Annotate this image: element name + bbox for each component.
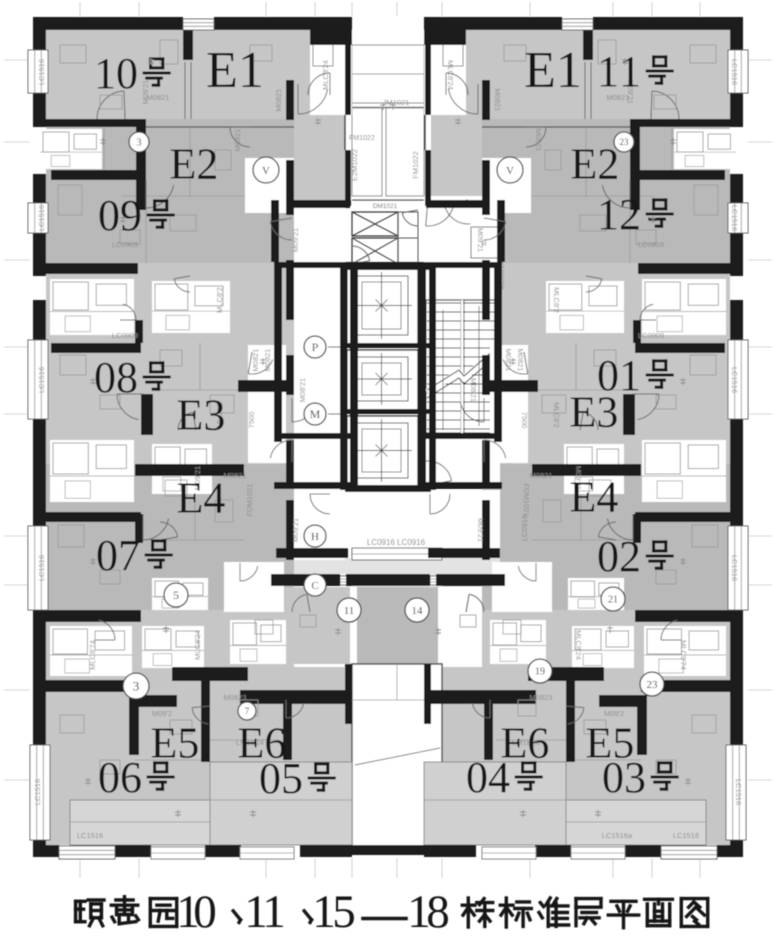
svg-text:M0823: M0823 — [530, 693, 553, 702]
svg-text:M09'21: M09'21 — [291, 228, 300, 252]
svg-text:M09'21: M09'21 — [476, 228, 485, 252]
svg-text:2: 2 — [619, 532, 641, 581]
svg-text:M0821: M0821 — [534, 129, 543, 152]
svg-text:MLC8'2: MLC8'2 — [552, 287, 561, 313]
svg-text:E4: E4 — [570, 472, 619, 521]
svg-text:M0821: M0821 — [251, 349, 260, 372]
svg-text:0: 0 — [193, 886, 217, 938]
svg-text:0: 0 — [98, 753, 120, 802]
svg-text:1: 1 — [597, 47, 619, 96]
svg-text:1: 1 — [597, 190, 619, 239]
svg-text:M0821: M0821 — [530, 471, 553, 480]
svg-text:3: 3 — [624, 753, 646, 802]
svg-text:2: 2 — [619, 190, 641, 239]
svg-text:LC1516: LC1516 — [37, 205, 46, 231]
svg-text:E3: E3 — [177, 390, 226, 439]
svg-text:FDM1021: FDM1021 — [522, 484, 531, 517]
svg-text:21: 21 — [608, 595, 618, 606]
svg-text:7: 7 — [118, 531, 140, 580]
svg-text:9: 9 — [120, 191, 142, 240]
svg-text:0: 0 — [259, 754, 281, 803]
svg-text:LC0909: LC0909 — [638, 331, 664, 340]
svg-text:M08'21: M08'21 — [469, 378, 478, 402]
svg-text:M09'21: M09'21 — [141, 80, 150, 104]
svg-text:8: 8 — [426, 886, 450, 938]
svg-text:JM1021: JM1021 — [383, 98, 410, 107]
svg-text:LC1516: LC1516 — [734, 779, 743, 805]
svg-text:LC1516: LC1516 — [77, 831, 103, 840]
svg-text:MLC8'24: MLC8'24 — [321, 60, 330, 90]
svg-text:C: C — [311, 580, 318, 592]
svg-text:3: 3 — [133, 679, 140, 694]
svg-text:LC1516: LC1516 — [730, 555, 739, 581]
svg-text:23: 23 — [620, 137, 630, 147]
svg-text:0: 0 — [116, 49, 138, 98]
svg-text:E2: E2 — [571, 139, 620, 188]
svg-text:LC1516: LC1516 — [673, 831, 699, 840]
svg-text:E4: E4 — [177, 473, 226, 522]
svg-text:8: 8 — [116, 353, 138, 402]
svg-text:23: 23 — [647, 679, 659, 691]
svg-text:M0821: M0821 — [274, 89, 283, 112]
svg-text:LC0909: LC0909 — [112, 331, 138, 340]
svg-text:0: 0 — [602, 753, 624, 802]
svg-text:E2: E2 — [170, 139, 219, 188]
svg-text:11: 11 — [344, 605, 355, 617]
svg-text:LC0916 LC0916: LC0916 LC0916 — [367, 538, 426, 547]
svg-text:LC1516: LC1516 — [730, 205, 739, 231]
svg-text:MLC8'24: MLC8'24 — [574, 630, 583, 660]
svg-text:E2M1022: E2M1022 — [350, 149, 359, 181]
svg-text:0: 0 — [466, 753, 488, 802]
svg-text:LC1516: LC1516 — [730, 367, 739, 393]
svg-text:LC0909: LC0909 — [112, 240, 138, 249]
svg-text:MLC8'74: MLC8'74 — [88, 640, 97, 670]
svg-text:0: 0 — [98, 191, 120, 240]
svg-text:E5: E5 — [151, 718, 200, 767]
svg-text:E1: E1 — [206, 42, 264, 99]
svg-text:MLC8'74: MLC8'74 — [679, 640, 688, 670]
svg-text:LC0916: LC0916 — [520, 515, 529, 541]
svg-text:0: 0 — [597, 532, 619, 581]
svg-text:0: 0 — [597, 351, 619, 400]
svg-text:M0821: M0821 — [516, 349, 525, 372]
svg-text:M08'21: M08'21 — [298, 378, 307, 402]
svg-text:LC1516: LC1516 — [37, 555, 46, 581]
svg-text:E1: E1 — [524, 42, 582, 99]
svg-text:MLC8'24: MLC8'24 — [193, 630, 202, 660]
svg-text:5: 5 — [332, 886, 356, 938]
svg-text:M0821: M0821 — [493, 89, 502, 112]
svg-text:M09'21: M09'21 — [291, 518, 300, 542]
svg-text:1: 1 — [94, 49, 116, 98]
svg-text:1: 1 — [262, 886, 286, 938]
svg-text:1: 1 — [619, 47, 641, 96]
svg-text:LC0909: LC0909 — [638, 240, 664, 249]
svg-text:FM1022: FM1022 — [349, 135, 375, 142]
svg-text:M0821: M0821 — [224, 471, 247, 480]
svg-text:DM1021: DM1021 — [373, 203, 398, 210]
svg-text:MLC8'2: MLC8'2 — [215, 287, 224, 313]
svg-text:M: M — [310, 407, 321, 421]
svg-text:LC1516: LC1516 — [37, 59, 46, 85]
svg-text:14: 14 — [412, 605, 424, 617]
svg-text:MLC8'24: MLC8'24 — [446, 60, 455, 90]
svg-text:0: 0 — [96, 531, 118, 580]
svg-text:7500: 7500 — [520, 412, 529, 429]
svg-text:M0821: M0821 — [233, 129, 242, 152]
svg-text:LC1516: LC1516 — [730, 59, 739, 85]
svg-text:LC1516: LC1516 — [37, 367, 46, 393]
svg-text:5: 5 — [173, 588, 179, 602]
svg-text:FDM1021: FDM1021 — [245, 484, 254, 517]
svg-text:7500: 7500 — [247, 412, 256, 429]
svg-text:LC1516a: LC1516a — [602, 831, 633, 840]
svg-text:FM1022: FM1022 — [411, 151, 420, 179]
svg-text:0: 0 — [94, 353, 116, 402]
svg-text:P: P — [312, 340, 319, 354]
svg-text:LC1516: LC1516 — [33, 779, 42, 805]
svg-text:4: 4 — [488, 753, 510, 802]
svg-text:M09'2: M09'2 — [152, 709, 172, 718]
svg-text:V: V — [262, 165, 270, 177]
svg-text:M0823: M0823 — [224, 693, 247, 702]
svg-text:7: 7 — [245, 706, 250, 716]
svg-text:5: 5 — [281, 754, 303, 803]
svg-text:6: 6 — [120, 753, 142, 802]
svg-text:V: V — [506, 165, 514, 177]
svg-text:M09'2: M09'2 — [604, 709, 624, 718]
svg-text:19: 19 — [535, 667, 545, 678]
svg-text:MLC8'2: MLC8'2 — [552, 402, 561, 428]
svg-text:3: 3 — [137, 138, 142, 149]
svg-text:1: 1 — [619, 351, 641, 400]
svg-text:M09'21: M09'21 — [476, 518, 485, 542]
svg-text:H: H — [311, 531, 319, 543]
